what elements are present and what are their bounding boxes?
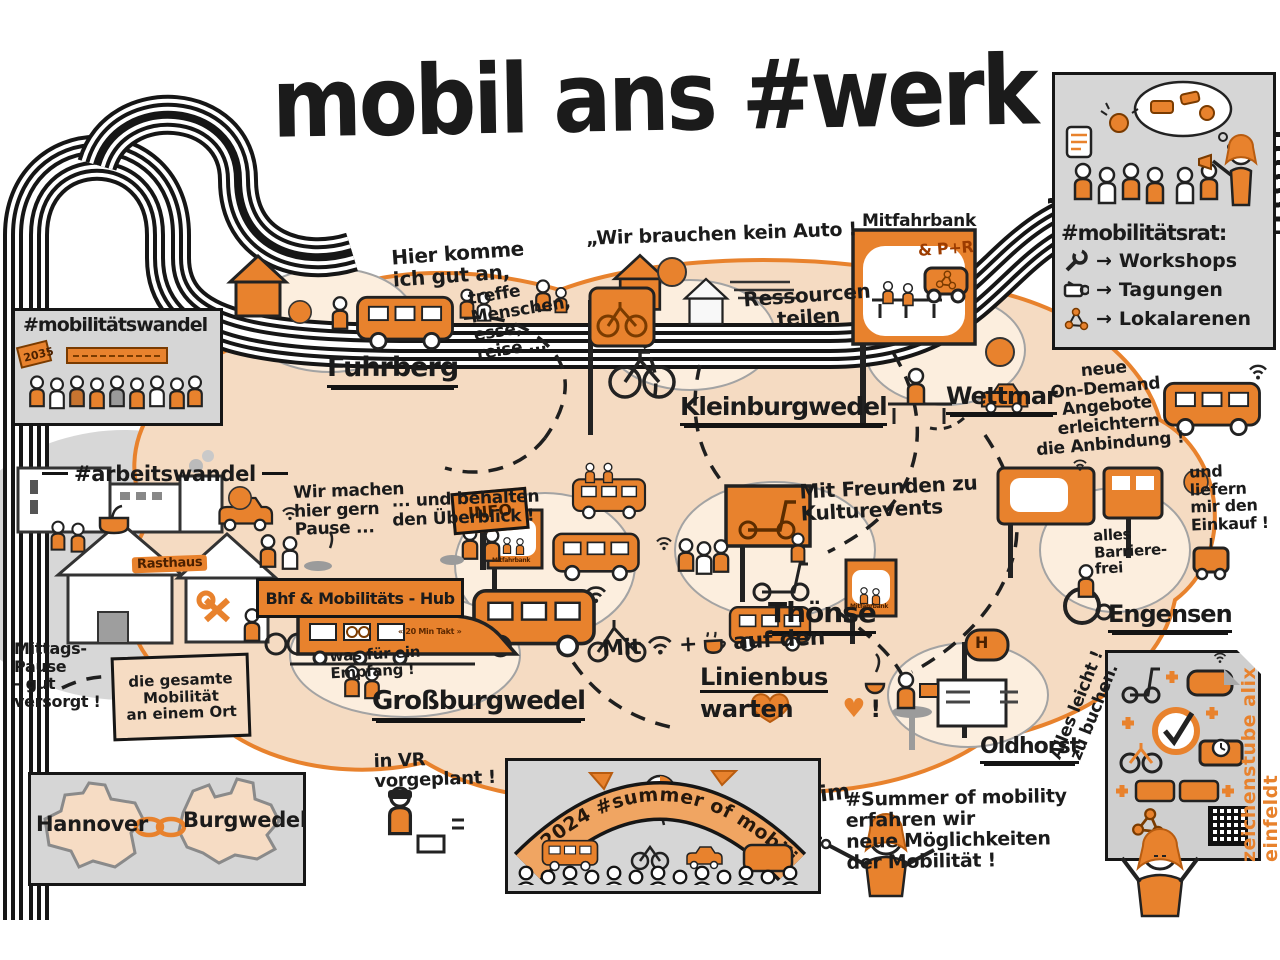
network-icon bbox=[1063, 306, 1089, 332]
mobilitaetswandel-box: #mobilitätswandel 2035 bbox=[12, 308, 223, 426]
arbeitswandel-title: #arbeitswandel bbox=[36, 440, 294, 486]
note-empfang: was für ein Empfang ! bbox=[329, 644, 421, 682]
note-mitfahrbank-label: Mitfahrbank bbox=[862, 212, 976, 231]
mini-mitfahrbank-sign-1: Mitfahrbank bbox=[492, 558, 530, 565]
note-summer: #Summer of mobility erfahren wir neue Mö… bbox=[845, 786, 1068, 873]
booking-woman bbox=[1118, 818, 1208, 918]
projector-icon bbox=[1063, 277, 1089, 303]
note-vr: in VR vorgeplant ! bbox=[373, 748, 496, 792]
hub-banner-sign: Bhf & Mobilitäts - Hub bbox=[256, 578, 464, 618]
rat-item-lokalarenen: → Lokalarenen bbox=[1063, 306, 1273, 332]
wrench-icon bbox=[1063, 248, 1089, 274]
protest-crowd: 2035 bbox=[15, 336, 214, 416]
note-warten: warten bbox=[700, 696, 793, 722]
region-kleinburgwedel: Kleinburgwedel bbox=[680, 392, 887, 426]
city-hannover: Hannover bbox=[36, 813, 148, 836]
arbeitswandel-text: #arbeitswandel bbox=[74, 462, 256, 486]
rat-item-label: Lokalarenen bbox=[1119, 308, 1251, 330]
divider-line bbox=[262, 472, 288, 475]
city-burgwedel: Burgwedel bbox=[183, 809, 307, 832]
stage-illustration: 2024 #summer of mobility bbox=[508, 761, 812, 885]
artist-credit: zeichenstube alix einfeldt bbox=[1238, 592, 1280, 862]
gesamt-mobilitaet-box: die gesamte Mobilität an einem Ort bbox=[111, 653, 252, 742]
coffee-icon bbox=[702, 631, 729, 656]
note-pause: Wir machen hier gern Pause ... bbox=[293, 480, 406, 540]
mobilitaetsrat-title: #mobilitätsrat: bbox=[1061, 221, 1273, 245]
rat-item-label: Workshops bbox=[1119, 250, 1237, 272]
note-takt: « 20 Min Takt » bbox=[398, 628, 461, 637]
mobilitaetsrat-box: #mobilitätsrat: → Workshops → Tagungen →… bbox=[1052, 72, 1276, 350]
cities-box: Hannover Burgwedel bbox=[28, 772, 306, 886]
note-excl: ! bbox=[870, 696, 881, 722]
council-crowd bbox=[1055, 75, 1267, 215]
divider-line bbox=[42, 472, 68, 475]
region-engensen: Engensen bbox=[1108, 600, 1232, 633]
note-kultur: Mit Freunden zu Kulturevents bbox=[799, 471, 979, 524]
rat-arrow: → bbox=[1096, 250, 1112, 272]
note-oberblick: ... und behalten den Überblick ! bbox=[391, 487, 540, 530]
summer-stage-box: 2024 #summer of mobility bbox=[505, 758, 821, 894]
page-title: mobil ans #werk bbox=[271, 36, 993, 161]
wifi-icon bbox=[646, 635, 675, 658]
note-barrierefrei: alles Barriere- frei bbox=[1093, 524, 1168, 577]
sketchnote-canvas: mobil ans #werk Fuhrberg Kleinburgwedel … bbox=[0, 0, 1280, 960]
region-fuhrberg: Fuhrberg bbox=[327, 352, 458, 388]
note-ressourcen: Ressourcen teilen bbox=[743, 280, 873, 333]
region-grossburgwedel: Großburgwedel bbox=[372, 686, 585, 721]
rat-item-workshops: → Workshops bbox=[1063, 248, 1273, 274]
mini-mitfahrbank-sign-2: Mitfahrbank bbox=[850, 604, 888, 611]
note-mit: Mit bbox=[602, 636, 642, 662]
rat-item-label: Tagungen bbox=[1119, 279, 1223, 301]
vr-person bbox=[388, 788, 464, 852]
note-linienbus: Linienbus bbox=[700, 664, 828, 693]
rat-arrow: → bbox=[1096, 308, 1112, 330]
note-ondemand: neue On-Demand Angebote erleichtern die … bbox=[1028, 354, 1186, 460]
note-haltestelle: H bbox=[975, 634, 988, 652]
note-mittagspause: Mittags- Pause - gut versorgt ! bbox=[14, 640, 101, 710]
note-einkauf: und liefern mir den Einkauf ! bbox=[1189, 460, 1280, 533]
note-pr: & P+R bbox=[917, 238, 974, 259]
note-aufden: auf den bbox=[733, 626, 826, 655]
note-arrive-2: treffe Menschen, esse, reise ... bbox=[467, 275, 578, 365]
note-plus: + bbox=[678, 633, 697, 658]
mobilitaetswandel-title: #mobilitätswandel bbox=[23, 314, 220, 336]
rasthaus-sign: Rasthaus bbox=[132, 555, 208, 574]
rat-item-tagungen: → Tagungen bbox=[1063, 277, 1273, 303]
heart-icon: ♥ bbox=[842, 699, 865, 720]
rat-arrow: → bbox=[1096, 279, 1112, 301]
note-warten-row: warten ♥ ! bbox=[700, 696, 881, 722]
